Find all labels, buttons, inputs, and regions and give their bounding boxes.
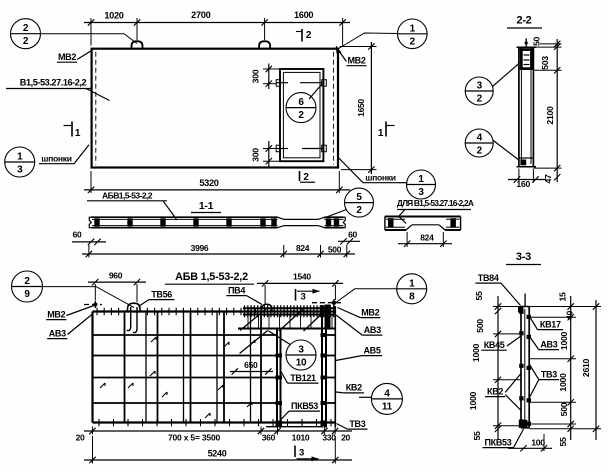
svg-text:ТВ121: ТВ121 — [290, 373, 316, 383]
svg-text:ПКВ53: ПКВ53 — [291, 401, 318, 411]
svg-text:1600: 1600 — [294, 10, 313, 20]
svg-text:МВ2: МВ2 — [347, 56, 365, 66]
svg-text:5240: 5240 — [208, 449, 227, 459]
svg-text:2: 2 — [477, 94, 483, 105]
svg-text:1: 1 — [409, 278, 415, 289]
svg-text:300: 300 — [251, 69, 261, 83]
svg-text:503: 503 — [540, 56, 550, 70]
svg-text:3: 3 — [418, 187, 424, 198]
svg-text:шпонки: шпонки — [365, 173, 396, 183]
svg-text:50: 50 — [532, 37, 542, 47]
svg-text:2: 2 — [24, 276, 30, 287]
svg-text:650: 650 — [244, 360, 258, 370]
svg-text:2: 2 — [298, 110, 304, 121]
svg-text:10: 10 — [296, 358, 307, 369]
svg-text:АБВ1,5-53-2,2: АБВ1,5-53-2,2 — [102, 191, 153, 201]
svg-text:АВ5: АВ5 — [363, 345, 380, 355]
svg-text:АВ3: АВ3 — [540, 339, 557, 349]
svg-text:40: 40 — [565, 311, 575, 321]
svg-text:ПКВ53: ПКВ53 — [485, 437, 512, 447]
svg-text:2-2: 2-2 — [517, 15, 532, 27]
svg-text:1650: 1650 — [356, 99, 366, 117]
svg-text:47: 47 — [543, 174, 553, 184]
svg-text:5320: 5320 — [199, 178, 218, 188]
svg-text:1: 1 — [17, 152, 23, 163]
svg-text:АВ3: АВ3 — [364, 325, 381, 335]
svg-text:55: 55 — [474, 291, 484, 301]
svg-text:КВ17: КВ17 — [540, 319, 561, 329]
svg-text:330: 330 — [322, 433, 336, 443]
svg-text:4: 4 — [384, 388, 390, 399]
svg-text:11: 11 — [382, 401, 393, 412]
svg-text:500: 500 — [475, 319, 485, 333]
svg-text:700 x 5= 3500: 700 x 5= 3500 — [168, 433, 220, 443]
svg-text:2: 2 — [23, 36, 29, 47]
svg-text:1000: 1000 — [559, 331, 569, 350]
svg-text:АБВ 1,5-53-2,2: АБВ 1,5-53-2,2 — [175, 271, 248, 283]
svg-text:КВ45: КВ45 — [484, 340, 505, 350]
svg-text:2: 2 — [23, 23, 29, 34]
svg-text:1000: 1000 — [468, 391, 478, 410]
svg-text:1010: 1010 — [292, 433, 310, 443]
svg-text:шпонки: шпонки — [41, 154, 72, 164]
svg-text:3-3: 3-3 — [516, 251, 531, 263]
svg-text:5: 5 — [356, 192, 362, 203]
svg-text:824: 824 — [296, 243, 310, 253]
svg-text:В1,5-53.27.16-2,2: В1,5-53.27.16-2,2 — [20, 78, 87, 88]
svg-text:ТВ3: ТВ3 — [349, 419, 365, 429]
svg-text:ТВ84: ТВ84 — [478, 273, 499, 283]
svg-text:2: 2 — [306, 30, 312, 41]
svg-text:ДЛЯ В1,5-53.27.16-2,2А: ДЛЯ В1,5-53.27.16-2,2А — [397, 198, 474, 208]
svg-text:3: 3 — [299, 448, 304, 459]
svg-text:ПВ4: ПВ4 — [228, 285, 245, 295]
svg-text:АВ3: АВ3 — [49, 328, 66, 338]
svg-text:20: 20 — [341, 433, 350, 443]
svg-text:2100: 2100 — [545, 106, 555, 125]
svg-text:2700: 2700 — [191, 10, 210, 20]
svg-text:1: 1 — [378, 128, 384, 139]
svg-text:3: 3 — [298, 345, 304, 356]
svg-text:55: 55 — [558, 437, 568, 447]
svg-text:1020: 1020 — [104, 11, 123, 21]
svg-text:3: 3 — [301, 292, 306, 303]
svg-text:2610: 2610 — [581, 358, 591, 377]
svg-text:2: 2 — [303, 172, 309, 183]
svg-text:3: 3 — [17, 165, 23, 176]
svg-text:300: 300 — [251, 148, 261, 162]
svg-text:1000: 1000 — [558, 373, 568, 392]
svg-text:МВ2: МВ2 — [47, 309, 65, 319]
svg-text:6: 6 — [298, 97, 304, 108]
svg-text:500: 500 — [328, 244, 342, 254]
svg-text:4: 4 — [477, 133, 483, 144]
svg-text:2: 2 — [356, 205, 362, 216]
svg-text:2: 2 — [477, 146, 483, 157]
svg-text:960: 960 — [109, 271, 123, 281]
svg-text:ТВ56: ТВ56 — [151, 289, 172, 299]
svg-text:МВ2: МВ2 — [361, 307, 379, 317]
svg-text:КВ2: КВ2 — [346, 383, 362, 393]
svg-text:60: 60 — [73, 230, 82, 240]
svg-text:2: 2 — [410, 36, 416, 47]
svg-text:1: 1 — [418, 174, 424, 185]
svg-text:160: 160 — [516, 179, 530, 189]
svg-text:ТВ3: ТВ3 — [541, 369, 557, 379]
svg-text:20: 20 — [76, 433, 85, 443]
svg-text:15: 15 — [558, 292, 568, 302]
svg-text:100: 100 — [531, 437, 545, 447]
svg-text:55: 55 — [472, 431, 482, 441]
svg-text:360: 360 — [262, 433, 276, 443]
svg-text:500: 500 — [559, 402, 569, 416]
svg-text:МВ2: МВ2 — [58, 52, 76, 62]
svg-text:3996: 3996 — [191, 243, 209, 253]
svg-text:1540: 1540 — [293, 272, 311, 282]
svg-text:КВ2: КВ2 — [487, 386, 503, 396]
svg-text:1: 1 — [410, 23, 416, 34]
svg-text:1-1: 1-1 — [199, 200, 214, 212]
svg-text:60: 60 — [348, 230, 357, 240]
svg-text:1000: 1000 — [471, 343, 481, 362]
svg-text:3: 3 — [477, 81, 483, 92]
svg-text:824: 824 — [420, 233, 434, 243]
svg-text:1: 1 — [75, 128, 81, 139]
svg-text:9: 9 — [24, 289, 30, 300]
svg-text:8: 8 — [409, 291, 415, 302]
